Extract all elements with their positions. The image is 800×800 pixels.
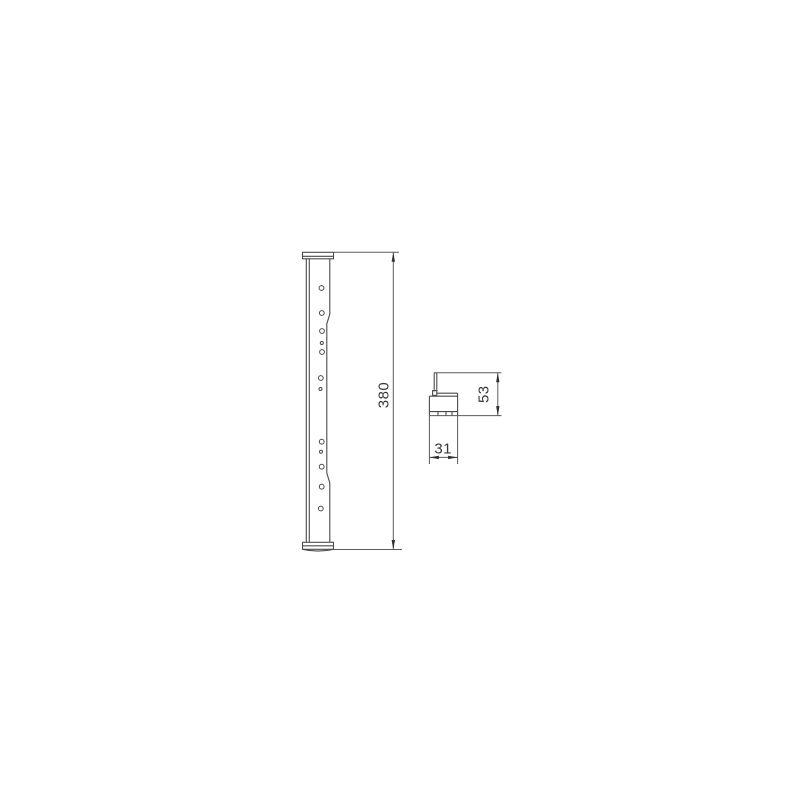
technical-drawing: 380 [0,0,800,800]
dimension-label-height: 53 [476,385,493,403]
hole [320,350,325,355]
dimension-length-380: 380 [334,252,402,549]
rail-mounting-holes [318,286,324,511]
hole [319,484,324,489]
dimension-height-53: 53 [429,373,501,416]
hole [320,329,325,334]
arrowhead-down [392,540,395,550]
rail-top-cap [303,252,334,258]
rail-body [306,259,330,543]
hole [319,388,322,391]
hole [319,439,324,444]
rail-right-edge [327,259,330,543]
section-body [429,393,457,415]
hole [318,506,323,511]
side-view-rail [303,252,334,551]
section-tab [433,373,437,396]
hole [320,450,323,453]
hole [319,286,324,291]
hole [318,376,323,381]
hole [320,342,323,345]
arrowhead-down [496,406,499,416]
rail-top-cap-outline [303,252,334,258]
dimension-label-width: 31 [434,441,452,458]
rail-bottom-cap [303,542,334,551]
dimension-label-length: 380 [375,382,392,409]
hole [319,311,324,316]
arrowhead-up [392,252,395,261]
section-view-profile [429,373,457,416]
hole [319,464,324,469]
technical-drawing-canvas: 380 [0,0,800,800]
dimension-width-31: 31 [429,416,457,464]
arrowhead-up [496,373,499,383]
